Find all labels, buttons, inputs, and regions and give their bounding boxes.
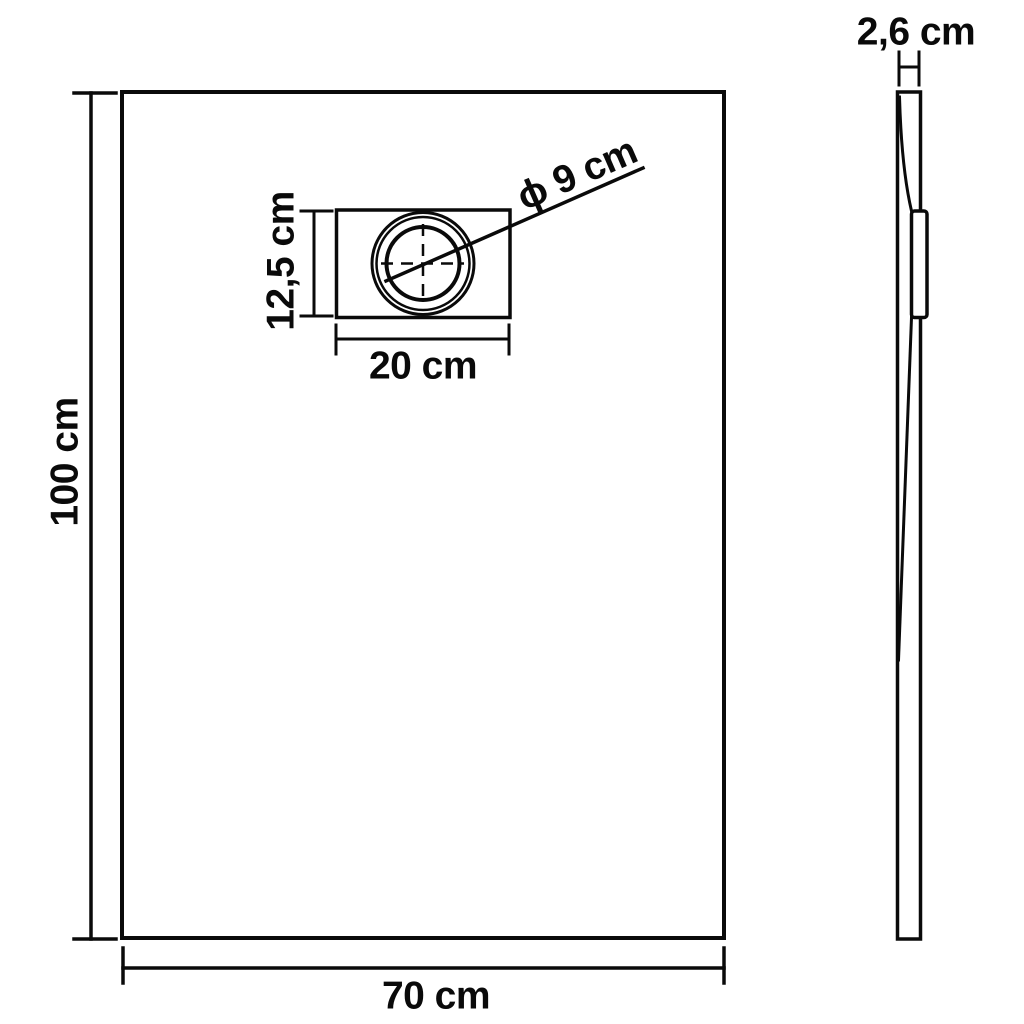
side-view-inner-slope-bottom [899, 318, 912, 661]
front-view-outline [122, 92, 724, 938]
side-view-drain-bump [912, 211, 928, 318]
diagram-linework [0, 0, 1024, 1024]
side-view-inner-slope-top [900, 97, 912, 211]
dimension-drawing: 100 cm 12,5 cm 20 cm ϕ 9 cm 70 cm 2,6 cm [0, 0, 1024, 1024]
front-width-label: 70 cm [382, 977, 490, 1016]
side-thickness-label: 2,6 cm [857, 13, 975, 52]
drain-height-label: 12,5 cm [262, 191, 301, 331]
thickness-dimension [899, 52, 919, 85]
front-height-label: 100 cm [46, 397, 85, 526]
drain-height-dimension [301, 211, 332, 316]
drain-width-label: 20 cm [369, 347, 477, 386]
